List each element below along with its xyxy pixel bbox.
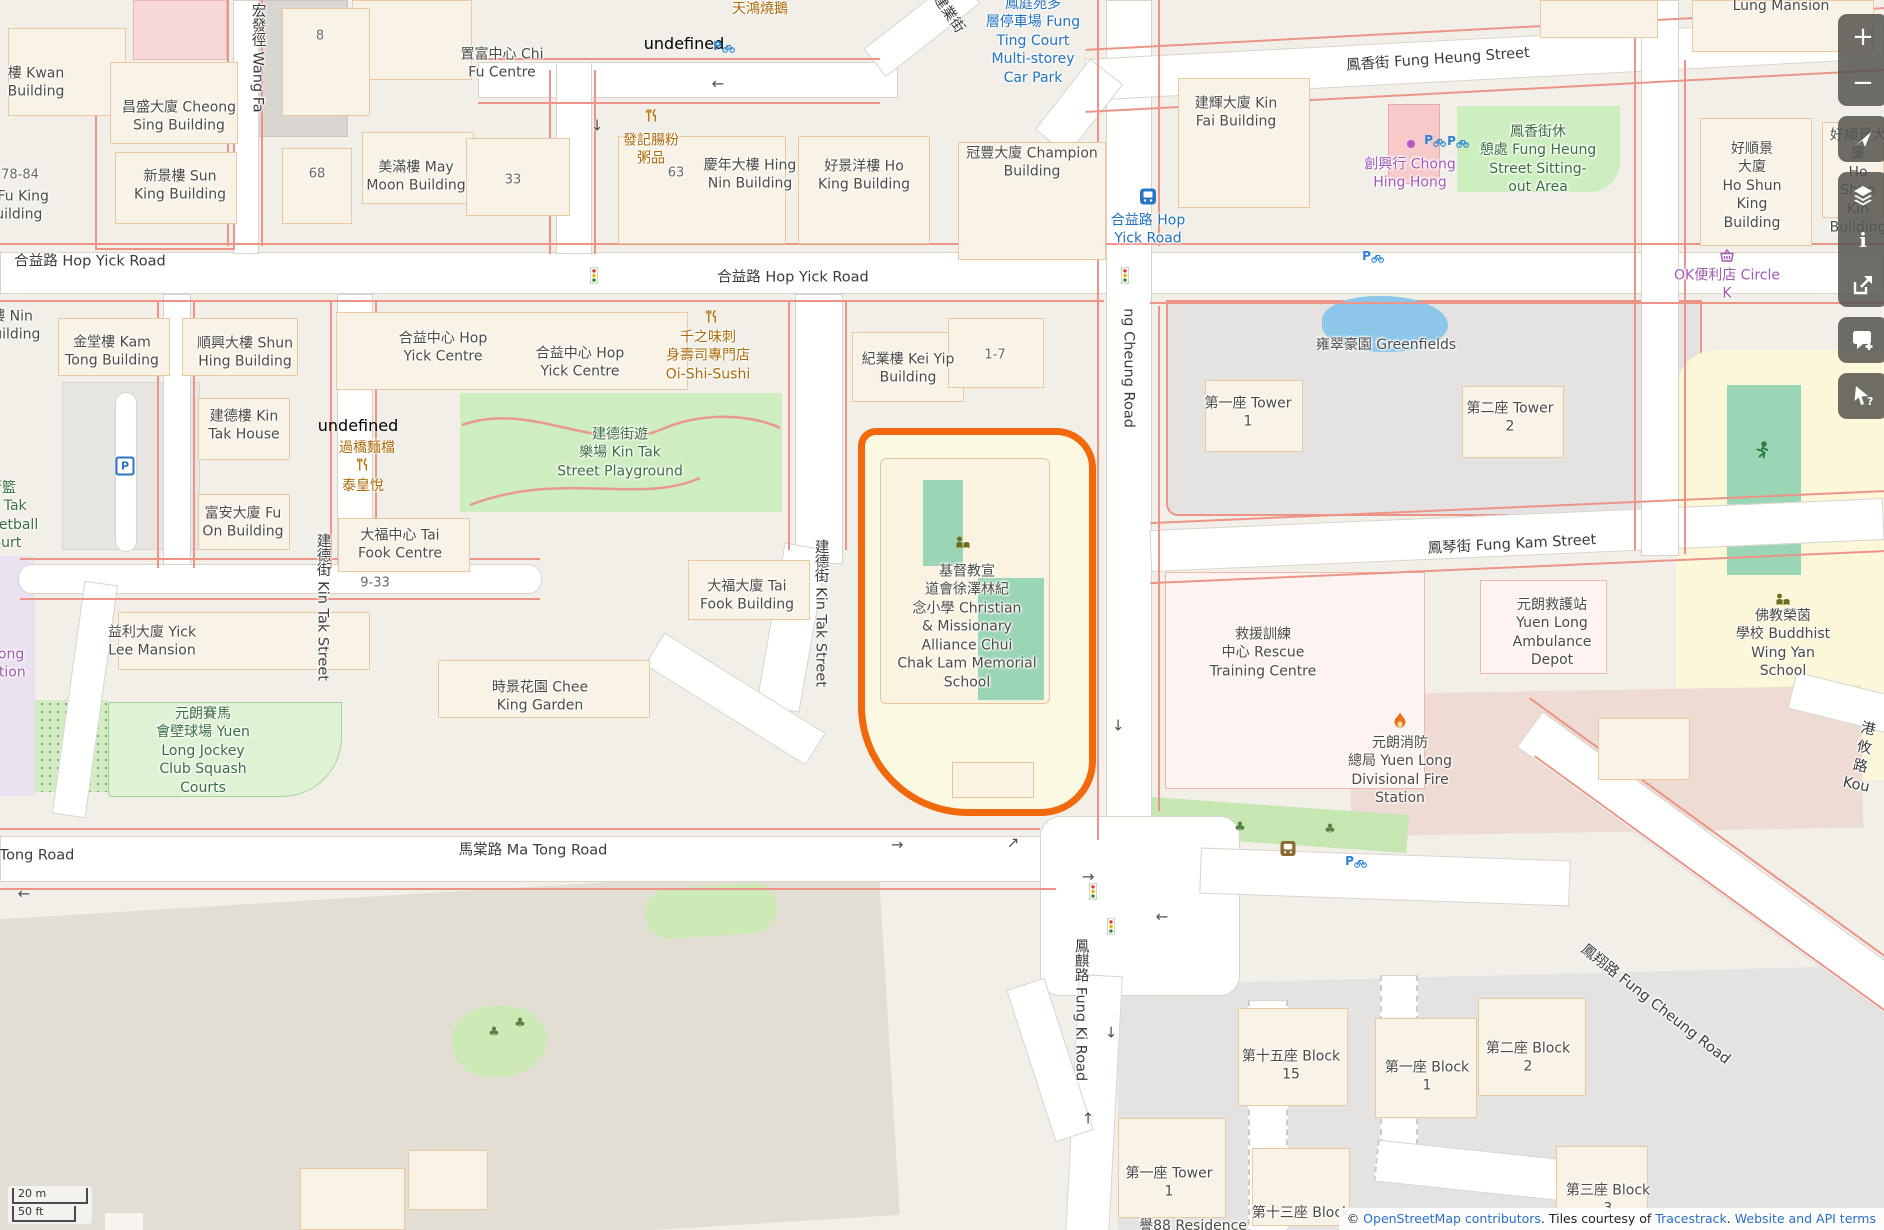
building-footprint	[1700, 118, 1812, 246]
building-footprint	[438, 660, 650, 718]
minus-icon: −	[1852, 68, 1874, 98]
building-footprint	[408, 1150, 488, 1210]
building-footprint	[338, 518, 470, 572]
building-footprint	[798, 136, 930, 244]
boundary-line	[594, 70, 596, 254]
boundary-line	[1158, 0, 1160, 246]
map-area	[108, 702, 342, 797]
building-footprint	[110, 62, 238, 144]
attrib-text2: .	[1727, 1211, 1735, 1226]
map-area	[952, 762, 1034, 798]
building-footprint	[198, 494, 290, 550]
boundary-line	[478, 102, 880, 104]
attrib-text: . Tiles courtesy of	[1541, 1211, 1655, 1226]
road-segment	[115, 392, 137, 552]
note-icon	[1851, 329, 1875, 351]
building-footprint	[282, 8, 370, 116]
attribution-bar: © OpenStreetMap contributors. Tiles cour…	[1339, 1208, 1884, 1230]
scale-imperial: 50 ft	[12, 1206, 76, 1222]
share-icon	[1852, 274, 1874, 296]
boundary-line	[1684, 60, 1686, 554]
building-footprint	[336, 312, 688, 390]
building-footprint	[352, 0, 472, 80]
building-footprint	[1462, 386, 1564, 458]
map-area	[104, 1212, 144, 1230]
map-area	[1727, 385, 1801, 575]
layers-button[interactable]	[1838, 172, 1884, 217]
map-area	[978, 578, 1044, 700]
locate-arrow-icon	[1853, 129, 1873, 149]
map-area	[1388, 104, 1440, 184]
map-area	[1480, 580, 1607, 674]
zoom-out-button[interactable]: −	[1838, 60, 1884, 106]
bld-fu-king: 樓 Fu King Building	[0, 188, 49, 225]
building-footprint	[1375, 1018, 1477, 1118]
map-area	[460, 393, 782, 512]
info-icon: i	[1859, 228, 1867, 252]
building-footprint	[1252, 1148, 1350, 1226]
road-segment	[478, 62, 898, 98]
poi-tin-hung: 天鴻燒鵝	[732, 0, 788, 18]
building-footprint	[1238, 1008, 1348, 1106]
boundary-line	[845, 300, 847, 550]
tracestrack-link[interactable]: Tracestrack	[1655, 1211, 1726, 1226]
building-footprint	[618, 136, 786, 244]
map-area	[1457, 106, 1620, 192]
building-footprint	[1205, 380, 1303, 452]
boundary-line	[1158, 306, 1160, 811]
boundary-line	[1634, 0, 1636, 550]
boundary-line	[0, 828, 1040, 830]
restaurant-icon: undefined	[644, 36, 725, 52]
building-footprint	[198, 398, 290, 460]
building-footprint	[118, 612, 370, 670]
carpark-fung-ting: 鳳庭苑多 層停車場 Fung Ting Court Multi-storey C…	[986, 0, 1080, 87]
map-toolbar: + − i ?	[1838, 14, 1884, 429]
building-footprint	[300, 1168, 405, 1230]
building-footprint	[948, 318, 1044, 388]
map-area	[1165, 572, 1425, 789]
map-key-button[interactable]: i	[1838, 217, 1884, 262]
svg-text:?: ?	[1867, 395, 1873, 408]
boundary-line	[788, 300, 790, 550]
building-footprint	[1540, 0, 1658, 38]
building-footprint	[1118, 1118, 1226, 1218]
boundary-line	[0, 243, 1884, 245]
restaurant-icon	[706, 310, 719, 326]
boundary-line	[95, 248, 235, 250]
building-footprint	[115, 152, 237, 224]
add-note-button[interactable]	[1838, 317, 1884, 363]
boundary-line	[95, 93, 97, 248]
map-area	[1322, 296, 1448, 352]
building-footprint	[958, 142, 1106, 260]
boundary-line	[1097, 0, 1099, 840]
locate-button[interactable]	[1838, 116, 1884, 162]
road-segment	[1106, 0, 1152, 850]
road-segment	[0, 836, 1100, 882]
boundary-line	[1150, 302, 1884, 304]
bld-nin: 樓 Nin Building	[0, 308, 40, 345]
zoom-in-button[interactable]: +	[1838, 14, 1884, 60]
boundary-line	[0, 300, 1104, 302]
share-button[interactable]	[1838, 262, 1884, 307]
oneway-arrow-icon: ↓	[591, 119, 604, 134]
park-basketball: 街籃 Kin Tak Basketball Court	[0, 479, 38, 553]
building-footprint	[282, 148, 352, 224]
road-segment	[1040, 816, 1240, 996]
building-footprint	[58, 318, 170, 376]
building-footprint	[8, 28, 126, 116]
boundary-line	[261, 0, 263, 246]
map-area	[643, 881, 778, 940]
num-78-84: 78-84	[1, 166, 39, 183]
scale-bar: 20 m 50 ft	[8, 1186, 92, 1224]
building-footprint	[466, 138, 570, 216]
road-segment	[795, 294, 843, 564]
restaurant-icon	[646, 109, 659, 125]
query-features-button[interactable]: ?	[1838, 373, 1884, 419]
osm-contributors-link[interactable]: OpenStreetMap contributors	[1363, 1211, 1541, 1226]
bicycle-parking-icon: P	[713, 40, 735, 56]
boundary-line	[0, 888, 1056, 890]
map-area	[133, 0, 227, 60]
query-cursor-icon: ?	[1851, 384, 1875, 408]
layers-icon	[1852, 184, 1874, 206]
building-footprint	[1478, 998, 1586, 1096]
copyright-text: ©	[1347, 1211, 1363, 1226]
building-footprint	[688, 560, 810, 620]
building-footprint	[182, 318, 298, 376]
map-canvas[interactable]: 合益路 Hop Yick Road合益路 Hop Yick Road鳳香街 Fu…	[0, 0, 1884, 1230]
plus-icon: +	[1852, 22, 1874, 52]
building-footprint	[1598, 718, 1690, 780]
boundary-line	[478, 58, 880, 60]
road-segment	[864, 0, 981, 77]
road-segment	[0, 252, 1884, 294]
boundary-line	[20, 598, 540, 600]
building-footprint	[362, 132, 474, 204]
building-footprint	[1178, 78, 1310, 208]
map-area	[923, 480, 963, 566]
boundary-line	[330, 300, 332, 568]
scale-metric: 20 m	[12, 1188, 88, 1204]
road-segment	[1199, 848, 1570, 907]
terms-link[interactable]: Website and API terms	[1735, 1211, 1876, 1226]
